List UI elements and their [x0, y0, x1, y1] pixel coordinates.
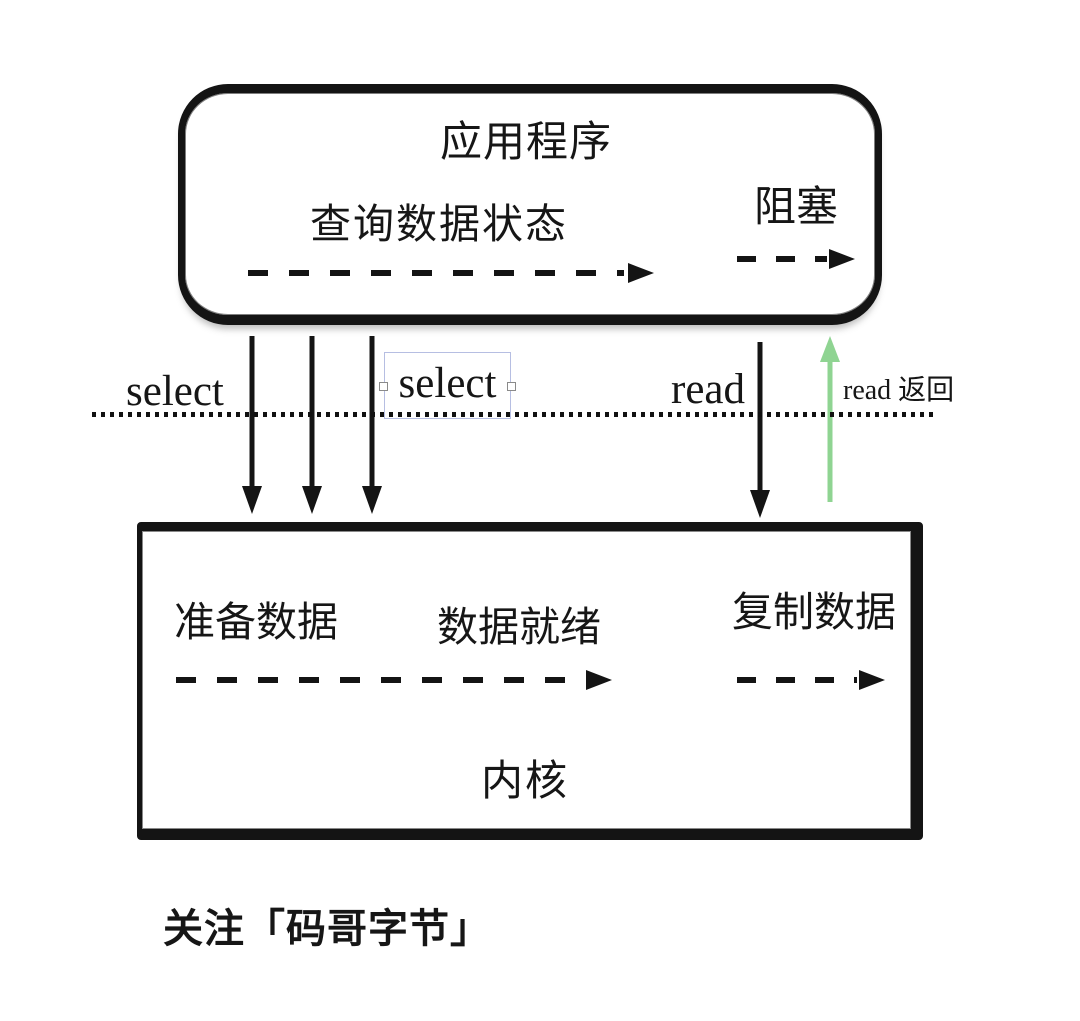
- blocking-label: 阻塞: [754, 186, 838, 231]
- read-down-arrow: [747, 342, 773, 518]
- prepare-dashed-arrow: [174, 665, 614, 695]
- select-down-arrow-3: [359, 336, 385, 514]
- query-dashed-arrow: [246, 258, 656, 288]
- diagram-canvas: 应用程序 查询数据状态 阻塞 select: [0, 0, 1080, 1021]
- prepare-data-label: 准备数据: [174, 600, 338, 644]
- select-label-left: select: [126, 369, 224, 415]
- query-status-label: 查询数据状态: [310, 202, 568, 246]
- blocking-dashed-arrow: [735, 244, 857, 274]
- kernel-title: 内核: [481, 760, 569, 805]
- select-down-arrow-2: [299, 336, 325, 514]
- caption-text: 关注「码哥字节」: [163, 907, 491, 950]
- read-return-up-arrow: [817, 336, 843, 502]
- data-ready-label: 数据就绪: [437, 605, 601, 649]
- select-label-boxed: select: [385, 353, 510, 415]
- copy-data-label: 复制数据: [732, 590, 896, 634]
- selection-handle-left-icon[interactable]: [379, 382, 388, 391]
- select-text-object[interactable]: select: [384, 352, 511, 419]
- selection-handle-right-icon[interactable]: [507, 382, 516, 391]
- application-title: 应用程序: [440, 121, 612, 166]
- read-label: read: [671, 367, 745, 413]
- copy-dashed-arrow: [735, 665, 887, 695]
- read-return-label: read 返回: [843, 376, 954, 406]
- select-down-arrow-1: [239, 336, 265, 514]
